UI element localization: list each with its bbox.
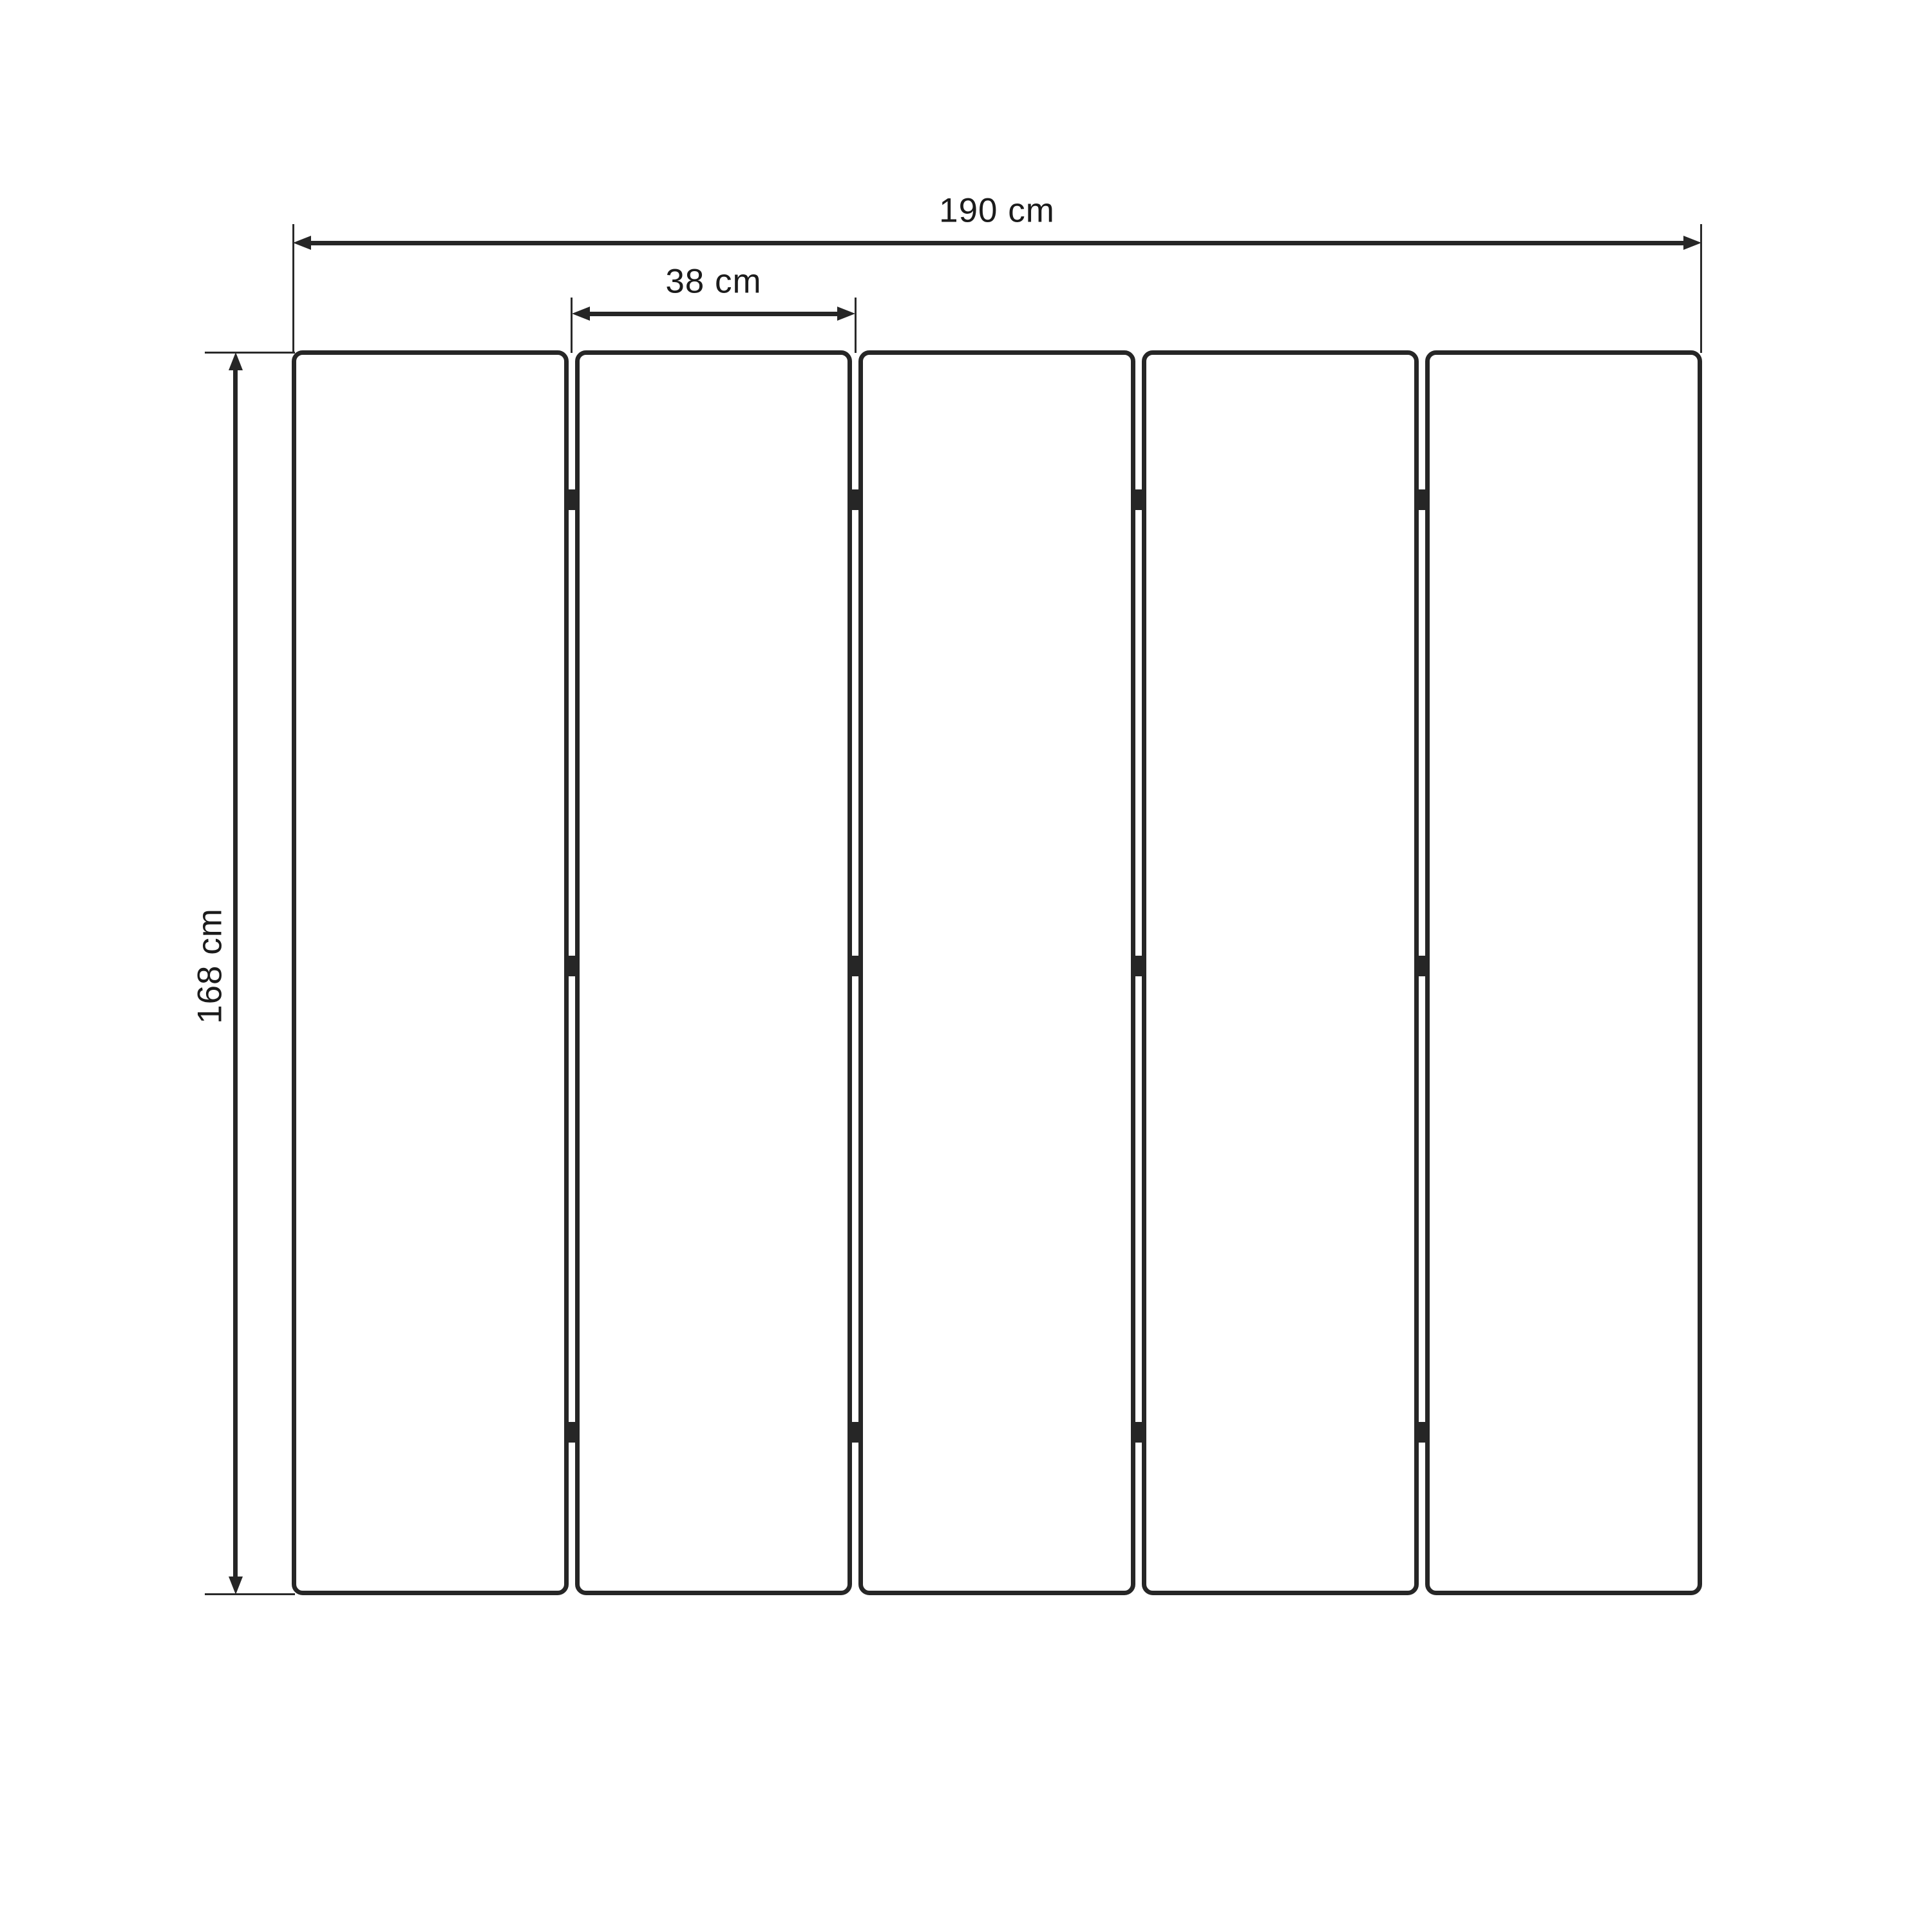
hinge (568, 489, 576, 510)
drawing-canvas: 190 cm 38 cm 168 cm (0, 0, 1932, 1932)
dim-panel-width-label: 38 cm (665, 265, 761, 299)
dim-total-width-label: 190 cm (939, 194, 1055, 228)
dim-total-width-arrow-left-icon (293, 236, 311, 250)
hinge (851, 489, 859, 510)
screen-panel-3 (858, 350, 1135, 1595)
extension-line-height-top (205, 352, 295, 354)
dim-total-width-arrow-right-icon (1683, 236, 1701, 250)
dim-height-arrow-up-icon (229, 352, 243, 370)
dim-panel-width-line (587, 312, 840, 316)
hinge (1135, 489, 1142, 510)
screen-panel-5 (1425, 350, 1702, 1595)
extension-line-panel-right (855, 298, 857, 353)
extension-line-panel-left (571, 298, 573, 353)
extension-line-total-left (292, 224, 294, 353)
dim-total-width-line (309, 241, 1685, 245)
screen-panel-2 (575, 350, 852, 1595)
screen-panel-4 (1142, 350, 1419, 1595)
dim-panel-width-arrow-right-icon (837, 307, 855, 321)
hinge (1135, 1422, 1142, 1443)
dim-height-label: 168 cm (193, 908, 227, 1024)
hinge (568, 956, 576, 976)
hinge (1418, 489, 1426, 510)
hinge (1135, 956, 1142, 976)
hinge (851, 1422, 859, 1443)
hinge (1418, 956, 1426, 976)
hinge (851, 956, 859, 976)
extension-line-height-bottom (205, 1593, 295, 1595)
screen-panel-1 (292, 350, 569, 1595)
dim-height-arrow-down-icon (229, 1577, 243, 1595)
extension-line-total-right (1700, 224, 1702, 353)
hinge (568, 1422, 576, 1443)
dim-height-line (233, 368, 238, 1578)
hinge (1418, 1422, 1426, 1443)
dim-panel-width-arrow-left-icon (572, 307, 590, 321)
